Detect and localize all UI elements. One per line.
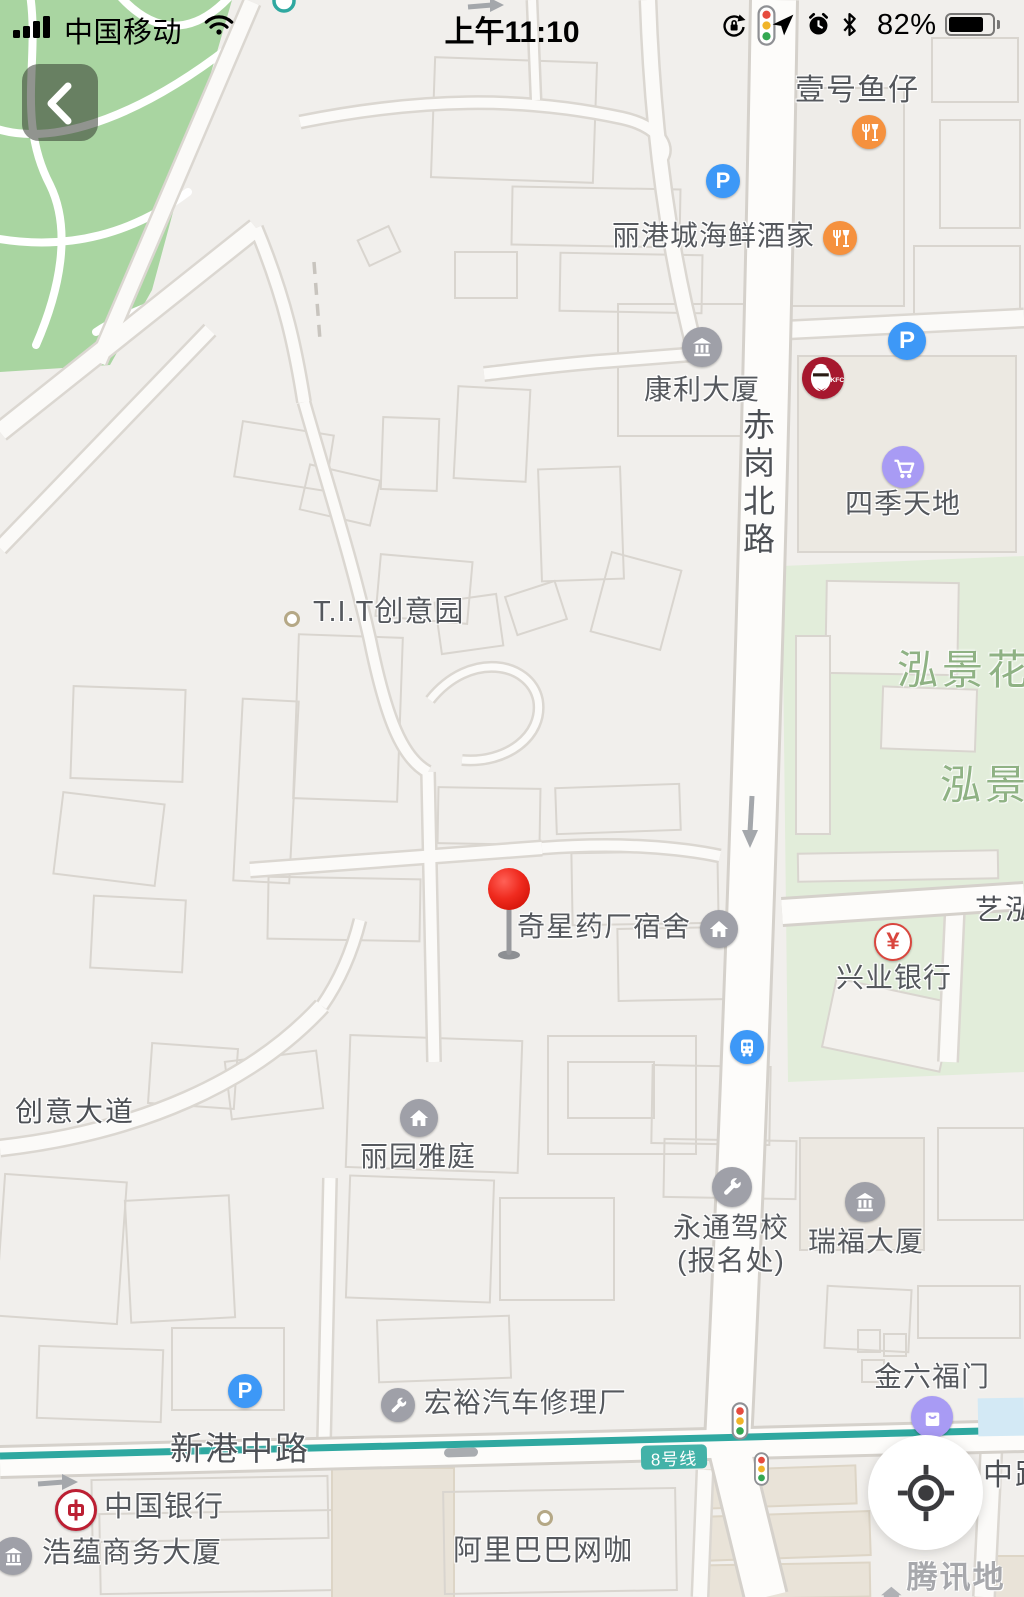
poi-label-haoyun-business-building[interactable]: 浩蕴商务大厦 (42, 1537, 222, 1570)
poi-label-yongtong-driving-school[interactable]: 永通驾校 (报名处) (651, 1211, 811, 1277)
poi-label-siji-tiandi[interactable]: 四季天地 (845, 488, 961, 520)
selected-location-pin[interactable] (459, 855, 559, 970)
map-watermark: 腾讯地图 (878, 1552, 1024, 1597)
metro-line-badge-text: 8号线 (651, 1444, 698, 1470)
crosshair-icon (895, 1462, 957, 1524)
poi-label-yihao-yuzai[interactable]: 壹号鱼仔 (795, 74, 919, 109)
map-canvas[interactable] (0, 0, 1024, 1597)
tencent-map-screen: KFC (0, 0, 1024, 1597)
boc-logo[interactable] (55, 1489, 97, 1531)
location-services-icon (771, 13, 795, 37)
house-icon[interactable] (400, 1099, 438, 1137)
orientation-lock-icon (720, 12, 748, 40)
parking-glyph: P (716, 168, 731, 194)
traffic-light-icon (731, 1402, 749, 1440)
bank-yuan-icon[interactable]: ¥ (874, 923, 912, 961)
label-line-2: (报名处) (651, 1244, 811, 1277)
battery-percent-label: 82% (877, 9, 937, 42)
parking-icon[interactable]: P (888, 322, 926, 360)
poi-label-ligangcheng-seafood[interactable]: 丽港城海鲜酒家 (612, 220, 815, 252)
building-icon[interactable] (845, 1182, 885, 1222)
parking-glyph: P (899, 327, 915, 355)
watermark-text: 腾讯地图 (907, 1552, 1024, 1597)
poi-label-liyuan-yating[interactable]: 丽园雅庭 (360, 1141, 476, 1173)
back-button[interactable] (22, 64, 98, 141)
parking-icon[interactable]: P (706, 164, 740, 198)
house-icon[interactable] (700, 910, 738, 948)
tencent-map-logo-icon (878, 1582, 905, 1597)
kfc-logo[interactable] (802, 357, 844, 399)
parking-glyph: P (238, 1378, 253, 1404)
bus-station-icon[interactable] (730, 1030, 764, 1064)
yuan-glyph: ¥ (886, 928, 899, 956)
locate-me-button[interactable] (868, 1435, 983, 1550)
building-icon[interactable] (682, 327, 722, 367)
chevron-left-icon (22, 65, 98, 141)
status-bar: 中国移动 上午11:10 82% (0, 0, 1024, 48)
restaurant-icon[interactable] (823, 221, 857, 255)
road-label-zhonglu-partial: 中路 (983, 1450, 1024, 1494)
dot-marker-icon[interactable] (284, 611, 300, 627)
battery-icon (945, 13, 1000, 36)
repair-icon[interactable] (712, 1167, 752, 1207)
poi-label-tit-creative-park[interactable]: T.I.T创意园 (313, 596, 464, 629)
area-label-hongjing-2: 泓景 (940, 751, 1024, 811)
label-line-1: 永通驾校 (651, 1211, 811, 1244)
water-feature (978, 1398, 1024, 1437)
shopping-cart-icon[interactable] (882, 446, 924, 488)
poi-label-ruifu-building[interactable]: 瑞福大厦 (808, 1226, 924, 1258)
clock-label: 上午11:10 (0, 7, 1024, 51)
restaurant-icon[interactable] (852, 115, 886, 149)
poi-label-jinliufu-men[interactable]: 金六福门 (874, 1361, 990, 1393)
poi-label-bank-of-china[interactable]: 中国银行 (104, 1491, 224, 1524)
poi-label-kangli-building[interactable]: 康利大厦 (644, 374, 760, 406)
shopping-bag-icon[interactable] (911, 1396, 953, 1438)
dot-marker-icon[interactable] (537, 1510, 553, 1526)
parking-icon[interactable]: P (228, 1374, 262, 1408)
repair-icon[interactable] (381, 1388, 415, 1422)
alarm-icon (806, 12, 831, 37)
area-label-hongjing-1: 泓景花 (897, 636, 1024, 696)
road-label-yihong-partial: 艺泓 (975, 888, 1024, 928)
road-label-chuangyi-avenue: 创意大道 (15, 1090, 135, 1130)
road-label-chigang-north: 赤岗北路 (734, 408, 780, 560)
bluetooth-icon (841, 11, 858, 38)
metro-line-badge: 8号线 (641, 1444, 707, 1469)
poi-label-alibaba-net-cafe[interactable]: 阿里巴巴网咖 (453, 1535, 633, 1568)
metro-train-marker (444, 1448, 478, 1458)
traffic-light-icon (753, 1452, 770, 1486)
road-label-xingang-middle: 新港中路 (170, 1422, 310, 1470)
poi-label-xingye-bank[interactable]: 兴业银行 (836, 962, 952, 994)
poi-label-hongyu-auto-repair[interactable]: 宏裕汽车修理厂 (424, 1387, 627, 1419)
